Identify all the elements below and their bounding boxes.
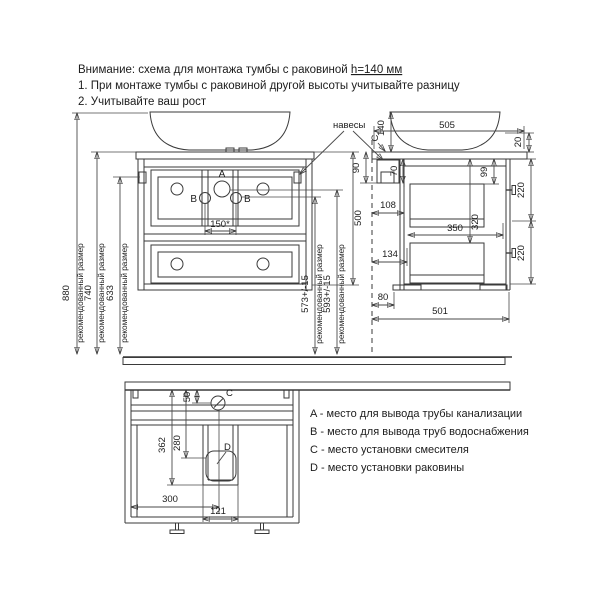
legend-item-c: C - место установки смесителя [310, 444, 469, 456]
dim-cabinet-depth: 501 [432, 306, 448, 317]
supply-point-b-right [231, 193, 242, 204]
dim-supply-height: 573+/-15 [300, 275, 311, 313]
plan-hanger-left [133, 390, 138, 398]
hanger-bracket-left [139, 172, 146, 183]
note-1: 1. При монтаже тумбы с раковиной другой … [78, 80, 460, 92]
drawer-hole [171, 258, 183, 270]
title-line: Внимание: схема для монтажа тумбы с рако… [78, 64, 402, 76]
side-view-dimensions: 140 505 20 С 90 70 108 99 350 [351, 112, 536, 323]
dim-pipe-spacing: 150* [210, 219, 230, 230]
legend-item-a: A - место для вывода трубы канализации [310, 408, 522, 420]
dim-hanger-mount: 90 [351, 163, 362, 174]
drawer-handle-upper [506, 186, 516, 195]
plan-view: С 50 D 362 280 300 121 [125, 382, 510, 534]
dim-back-clearance: 134 [382, 249, 398, 260]
dim-recess-width: 121 [210, 506, 226, 517]
dim-drain-far: 362 [157, 437, 168, 453]
installation-diagram-page: Внимание: схема для монтажа тумбы с рако… [0, 0, 600, 600]
plinth-notch [480, 285, 507, 290]
label-side-point-c: С [370, 134, 381, 141]
header-notes: Внимание: схема для монтажа тумбы с рако… [78, 64, 460, 108]
front-countertop [136, 152, 314, 159]
label-plan-point-c: С [226, 388, 233, 399]
front-sink-outline [150, 112, 290, 150]
legend-item-d: D - место установки раковины [310, 462, 464, 474]
dim-note-recommended: рекомендованный размер [120, 243, 129, 343]
dim-hanger-body: 70 [389, 166, 400, 177]
legend-item-b: B - место для вывода труб водоснабжения [310, 426, 529, 438]
dim-inner-height: 320 [470, 214, 481, 230]
side-bottom-drawer [410, 243, 484, 283]
label-point-a: A [219, 169, 226, 180]
drain-position-d [206, 451, 236, 481]
title-main: Внимание: схема для монтажа тумбы с рако… [78, 64, 351, 76]
side-countertop [372, 152, 527, 159]
dim-total-height: 880 [61, 285, 72, 301]
plan-hanger-right [284, 390, 289, 398]
dim-hanger-height: 633 [105, 285, 116, 301]
label-point-b-left: B [190, 194, 197, 205]
dim-center-offset: 300 [162, 494, 178, 505]
dim-counter-height: 740 [83, 285, 94, 301]
dim-counter-depth: 505 [439, 120, 455, 131]
drawer-handle-lower [506, 249, 516, 258]
pipe-height-dimensions: 573+/-15 рекомендованный размер 593+/-15… [230, 152, 364, 354]
title-height-value: h=140 мм [351, 64, 402, 76]
plinth-notch [393, 285, 421, 290]
label-point-b-right: B [244, 194, 251, 205]
note-2: 2. Учитывайте ваш рост [78, 96, 207, 108]
hangers-label: навесы [333, 120, 366, 131]
supply-point-b-left [200, 193, 211, 204]
dim-note-recommended: рекомендованный размер [337, 244, 346, 344]
dim-drain-height: 593+/-15 [322, 275, 333, 313]
legend: A - место для вывода трубы канализации B… [310, 408, 529, 474]
label-plan-point-d: D [224, 442, 231, 453]
drawer-hole [171, 183, 183, 195]
drawer-hole [257, 183, 269, 195]
front-view: A B B 150* [136, 112, 314, 290]
cabinet-foot [170, 523, 184, 534]
dim-sink-height: 140 [376, 120, 387, 136]
drawer-hole [257, 258, 269, 270]
vanity-installation-drawing: Внимание: схема для монтажа тумбы с рако… [0, 0, 600, 600]
drain-point-a [214, 181, 230, 197]
front-height-dimensions: 880 рекомендованный размер 740 рекомендо… [61, 113, 148, 354]
dim-drain-center: 280 [172, 435, 183, 451]
cabinet-foot [255, 523, 269, 534]
dim-faucet-offset: 50 [182, 392, 193, 403]
front-bottom-drawer [151, 245, 299, 283]
dim-hanger-depth: 108 [380, 200, 396, 211]
floor [123, 357, 512, 365]
dim-foot-inset: 80 [378, 292, 389, 303]
dim-drawer-top-inset: 99 [479, 167, 490, 178]
dim-drawer-depth: 350 [447, 223, 463, 234]
dim-top-gap: 20 [513, 137, 524, 148]
dim-drawer-front-upper: 220 [516, 182, 527, 198]
plan-wall-hatch [125, 382, 510, 390]
dim-drawer-front-lower: 220 [516, 245, 527, 261]
dim-cabinet-height: 500 [353, 210, 364, 226]
